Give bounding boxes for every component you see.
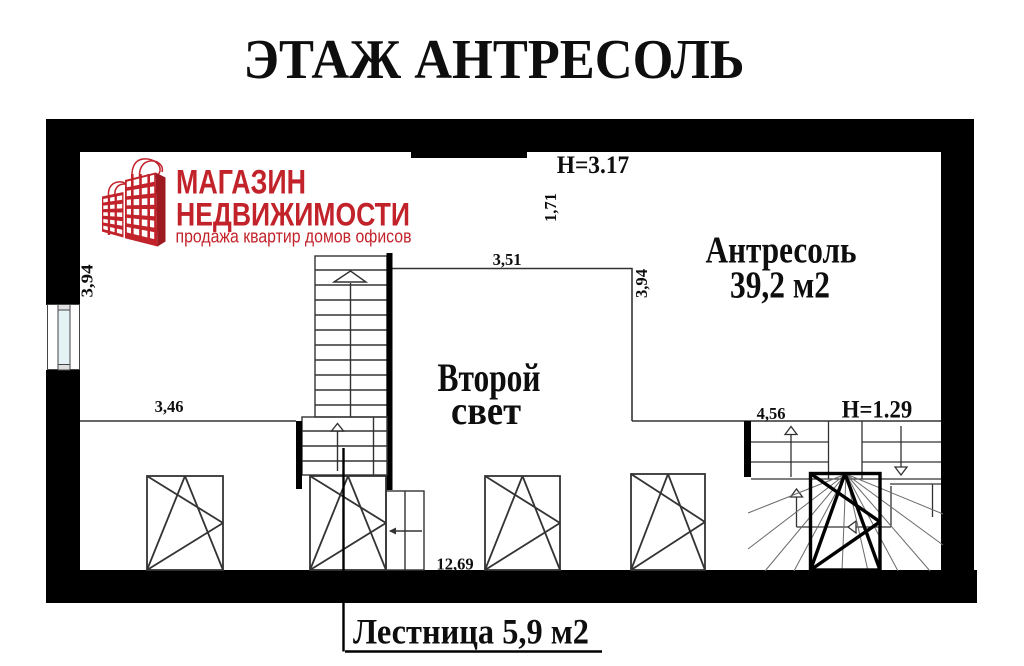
svg-text:3,46: 3,46 [155, 397, 184, 416]
svg-text:Н=3.17: Н=3.17 [557, 152, 630, 179]
svg-text:свет: свет [451, 388, 521, 433]
svg-text:4,56: 4,56 [757, 404, 786, 423]
svg-text:39,2 м2: 39,2 м2 [730, 265, 830, 307]
svg-text:Лестница 5,9 м2: Лестница 5,9 м2 [353, 612, 589, 652]
svg-text:ЭТАЖ АНТРЕСОЛЬ: ЭТАЖ АНТРЕСОЛЬ [244, 29, 745, 91]
svg-text:3,94: 3,94 [632, 269, 651, 298]
svg-text:3,94: 3,94 [78, 265, 97, 298]
svg-text:продажа квартир домов офисов: продажа квартир домов офисов [176, 227, 412, 247]
svg-text:1,71: 1,71 [541, 193, 560, 222]
svg-text:12,69: 12,69 [436, 555, 473, 574]
svg-text:Н=1.29: Н=1.29 [842, 397, 913, 424]
svg-text:3,51: 3,51 [493, 250, 522, 269]
